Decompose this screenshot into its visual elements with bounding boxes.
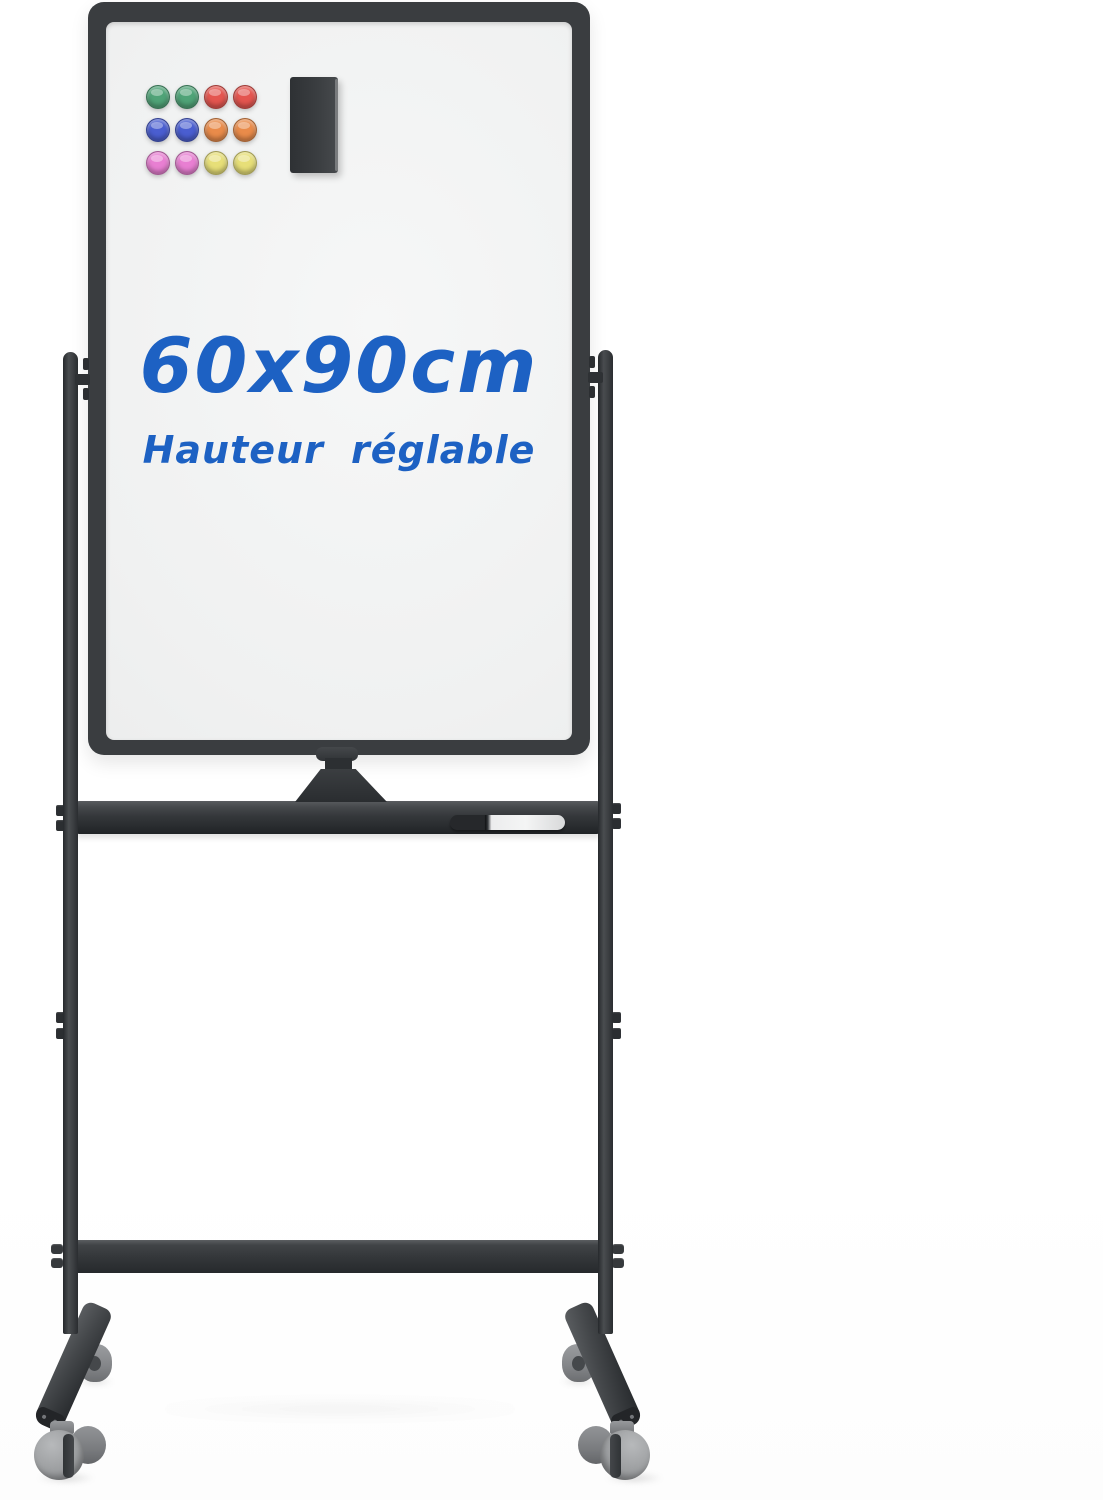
crossbar bbox=[70, 1240, 606, 1273]
height-adjust-pin bbox=[612, 1012, 621, 1023]
magnet-red bbox=[233, 85, 257, 109]
magnet-yellow bbox=[204, 151, 228, 175]
caster-wheel-front bbox=[34, 1430, 84, 1480]
hinge-nub bbox=[589, 386, 595, 398]
magnet-green bbox=[146, 85, 170, 109]
magnet-yellow bbox=[233, 151, 257, 175]
floor-shadow bbox=[70, 1396, 610, 1422]
magnet-green bbox=[175, 85, 199, 109]
crossbar-bolt bbox=[51, 1244, 63, 1254]
caster-wheel-front bbox=[600, 1430, 650, 1480]
height-adjustable-annotation: Hauteur réglable bbox=[88, 424, 590, 476]
caster-hub bbox=[610, 1434, 621, 1478]
pivot-bracket bbox=[295, 769, 387, 802]
caster-hub bbox=[63, 1434, 74, 1478]
stand-pole-left bbox=[63, 352, 78, 1334]
tray-bolt bbox=[612, 803, 621, 814]
pivot-knob-right bbox=[588, 372, 603, 383]
magnet-blue bbox=[175, 118, 199, 142]
board-eraser bbox=[290, 77, 338, 173]
magnet-orange bbox=[233, 118, 257, 142]
pivot-knob-left bbox=[75, 374, 90, 385]
magnet-red bbox=[204, 85, 228, 109]
product-photo-mobile-whiteboard: 60x90cm Hauteur réglable bbox=[0, 0, 1103, 1500]
hinge-nub bbox=[83, 358, 89, 370]
hinge-nub bbox=[83, 388, 89, 400]
magnet-blue bbox=[146, 118, 170, 142]
height-adjust-pin bbox=[612, 1028, 621, 1039]
caster-front-left bbox=[32, 1420, 106, 1484]
magnet-grid bbox=[146, 85, 257, 175]
stand-pole-right bbox=[598, 350, 613, 1334]
hinge-nub bbox=[589, 356, 595, 368]
crossbar-bolt bbox=[612, 1244, 624, 1254]
magnet-pink bbox=[146, 151, 170, 175]
tray-bolt bbox=[612, 818, 621, 829]
magnet-orange bbox=[204, 118, 228, 142]
size-annotation: 60x90cm bbox=[88, 320, 590, 412]
dry-erase-marker bbox=[450, 815, 565, 830]
magnet-pink bbox=[175, 151, 199, 175]
crossbar-bolt bbox=[612, 1258, 624, 1268]
caster-front-right bbox=[578, 1420, 652, 1484]
crossbar-bolt bbox=[51, 1258, 63, 1268]
